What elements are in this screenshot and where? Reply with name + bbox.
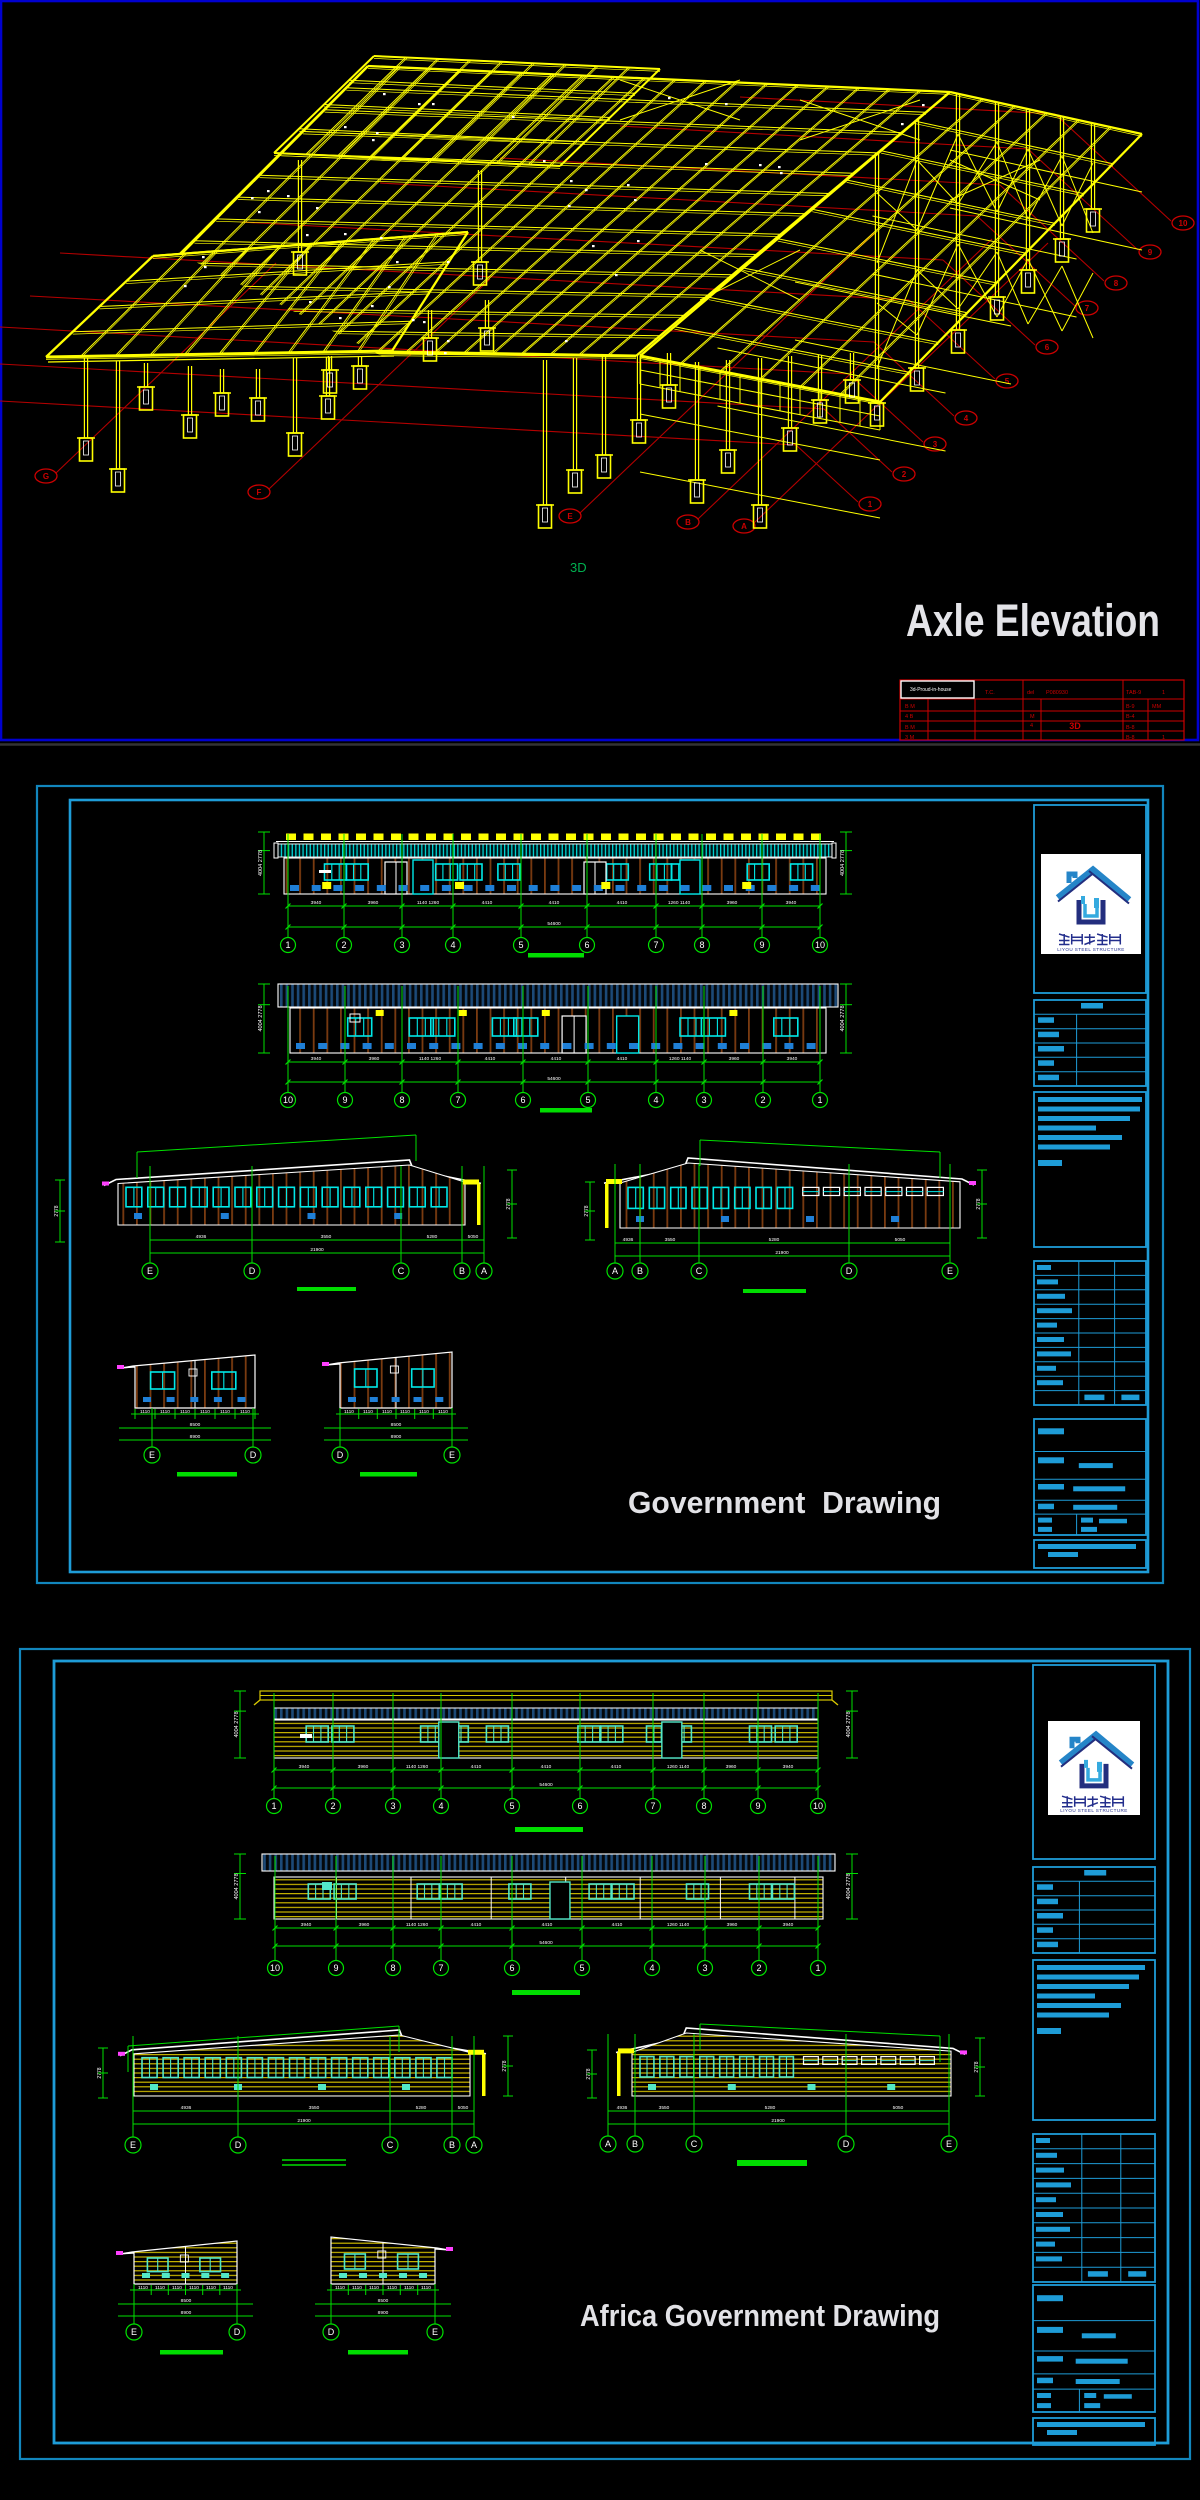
svg-text:P080930: P080930: [1046, 690, 1068, 696]
svg-text:1110: 1110: [223, 2285, 233, 2291]
svg-text:8500: 8500: [181, 2298, 192, 2304]
svg-text:B-9: B-9: [1126, 704, 1135, 710]
svg-text:6: 6: [584, 940, 589, 950]
svg-text:4004 2778: 4004 2778: [234, 1874, 240, 1900]
svg-text:4410: 4410: [541, 1764, 552, 1770]
svg-text:B: B: [449, 2140, 455, 2150]
svg-text:9: 9: [755, 1801, 760, 1811]
svg-text:1: 1: [1162, 735, 1165, 741]
svg-text:4004 2778: 4004 2778: [258, 1006, 264, 1032]
svg-text:B: B: [637, 1266, 643, 1276]
svg-text:1110: 1110: [382, 1409, 392, 1415]
svg-text:1: 1: [817, 1095, 822, 1105]
svg-text:21900: 21900: [775, 1250, 789, 1256]
svg-text:E: E: [131, 2327, 137, 2337]
svg-text:A: A: [741, 522, 747, 531]
svg-text:4410: 4410: [482, 900, 493, 906]
svg-text:1110: 1110: [140, 1409, 150, 1415]
svg-text:8: 8: [699, 940, 704, 950]
svg-text:5050: 5050: [893, 2105, 904, 2111]
svg-text:3: 3: [390, 1801, 395, 1811]
svg-text:3550: 3550: [665, 1237, 676, 1243]
svg-text:3550: 3550: [309, 2105, 320, 2111]
svg-text:10: 10: [270, 1963, 280, 1973]
svg-text:C: C: [691, 2139, 698, 2149]
svg-text:B M: B M: [905, 725, 915, 731]
svg-text:F: F: [257, 488, 262, 497]
svg-text:Africa Government Drawing: Africa Government Drawing: [580, 2298, 940, 2333]
svg-text:B-8: B-8: [1126, 735, 1135, 741]
svg-text:4004 2778: 4004 2778: [846, 1874, 852, 1900]
svg-text:3940: 3940: [299, 1764, 310, 1770]
svg-text:E: E: [149, 1450, 155, 1460]
svg-text:3d-Proud-in-house: 3d-Proud-in-house: [910, 687, 952, 693]
svg-text:7: 7: [455, 1095, 460, 1105]
svg-text:E: E: [130, 2140, 136, 2150]
svg-text:5: 5: [1005, 377, 1010, 386]
svg-text:9: 9: [342, 1095, 347, 1105]
svg-text:2: 2: [330, 1801, 335, 1811]
svg-text:5280: 5280: [769, 1237, 780, 1243]
svg-text:5280: 5280: [416, 2105, 427, 2111]
svg-text:1140 1260: 1140 1260: [419, 1056, 442, 1062]
svg-text:8900: 8900: [181, 2310, 192, 2316]
svg-text:4004 2778: 4004 2778: [258, 850, 264, 876]
svg-text:3940: 3940: [786, 900, 797, 906]
svg-text:E: E: [946, 2139, 952, 2149]
svg-text:3960: 3960: [368, 900, 379, 906]
svg-text:1110: 1110: [363, 1409, 373, 1415]
svg-text:1110: 1110: [172, 2285, 182, 2291]
svg-text:4410: 4410: [485, 1056, 496, 1062]
svg-text:1110: 1110: [220, 1409, 230, 1415]
svg-text:2: 2: [756, 1963, 761, 1973]
svg-text:E: E: [449, 1450, 455, 1460]
svg-text:D: D: [249, 1266, 256, 1276]
svg-text:D: D: [843, 2139, 850, 2149]
svg-text:10: 10: [283, 1095, 293, 1105]
svg-text:3940: 3940: [783, 1922, 794, 1928]
svg-text:6: 6: [509, 1963, 514, 1973]
svg-text:8500: 8500: [391, 1422, 402, 1428]
svg-text:3D: 3D: [1069, 721, 1081, 731]
svg-text:D: D: [234, 2327, 241, 2337]
svg-text:54600: 54600: [547, 921, 561, 927]
svg-text:1110: 1110: [240, 1409, 250, 1415]
svg-text:10: 10: [815, 940, 825, 950]
svg-text:5050: 5050: [468, 1234, 479, 1240]
svg-text:5: 5: [585, 1095, 590, 1105]
svg-text:E: E: [432, 2327, 438, 2337]
svg-text:1: 1: [815, 1963, 820, 1973]
svg-text:B-4: B-4: [1126, 714, 1135, 720]
svg-text:5: 5: [518, 940, 523, 950]
svg-text:4410: 4410: [617, 900, 628, 906]
svg-text:1110: 1110: [206, 2285, 216, 2291]
svg-text:3940: 3940: [783, 1764, 794, 1770]
svg-text:4004 2778: 4004 2778: [840, 1006, 846, 1032]
svg-text:2778: 2778: [502, 2060, 508, 2071]
svg-text:D: D: [328, 2327, 335, 2337]
svg-text:A: A: [605, 2139, 611, 2149]
svg-text:2778: 2778: [976, 1198, 982, 1209]
svg-text:3940: 3940: [311, 1056, 322, 1062]
svg-text:B: B: [632, 2139, 638, 2149]
svg-text:9: 9: [759, 940, 764, 950]
svg-text:TAB-9: TAB-9: [1126, 690, 1141, 696]
svg-text:21900: 21900: [297, 2118, 311, 2124]
svg-text:4936: 4936: [181, 2105, 192, 2111]
svg-text:6: 6: [520, 1095, 525, 1105]
svg-text:21900: 21900: [310, 1247, 324, 1253]
svg-text:G: G: [43, 472, 49, 481]
svg-text:Axle Elevation: Axle Elevation: [906, 595, 1160, 646]
svg-text:A: A: [471, 2140, 477, 2150]
svg-text:3960: 3960: [358, 1764, 369, 1770]
svg-text:1110: 1110: [155, 2285, 165, 2291]
svg-text:5280: 5280: [427, 1234, 438, 1240]
svg-text:3D: 3D: [570, 560, 587, 575]
svg-text:2778: 2778: [97, 2067, 103, 2078]
svg-text:D: D: [337, 1450, 344, 1460]
svg-text:1110: 1110: [335, 2285, 345, 2291]
svg-text:1110: 1110: [180, 1409, 190, 1415]
svg-text:3960: 3960: [727, 1922, 738, 1928]
svg-text:1110: 1110: [421, 2285, 431, 2291]
svg-text:1110: 1110: [438, 1409, 448, 1415]
svg-text:B M: B M: [905, 704, 915, 710]
svg-text:2778: 2778: [974, 2061, 980, 2072]
svg-text:4936: 4936: [196, 1234, 207, 1240]
svg-text:E: E: [147, 1266, 153, 1276]
svg-text:LIYOU STEEL STRUCTURE: LIYOU STEEL STRUCTURE: [1060, 1808, 1127, 1813]
svg-text:7: 7: [1085, 304, 1090, 313]
svg-text:D: D: [250, 1450, 257, 1460]
svg-text:1110: 1110: [387, 2285, 397, 2291]
svg-text:8: 8: [701, 1801, 706, 1811]
svg-text:3960: 3960: [727, 900, 738, 906]
svg-text:4: 4: [964, 414, 969, 423]
svg-text:2778: 2778: [506, 1198, 512, 1209]
svg-text:7: 7: [653, 940, 658, 950]
svg-text:4: 4: [438, 1801, 443, 1811]
svg-text:4 B: 4 B: [905, 714, 914, 720]
svg-text:4410: 4410: [612, 1922, 623, 1928]
svg-text:C: C: [387, 2140, 394, 2150]
svg-text:1110: 1110: [138, 2285, 148, 2291]
svg-text:D: D: [235, 2140, 242, 2150]
svg-text:3960: 3960: [369, 1056, 380, 1062]
svg-text:4: 4: [1030, 723, 1033, 729]
svg-text:1260 1140: 1260 1140: [667, 1922, 690, 1928]
svg-text:4410: 4410: [611, 1764, 622, 1770]
svg-text:4410: 4410: [551, 1056, 562, 1062]
svg-text:1110: 1110: [352, 2285, 362, 2291]
svg-text:3940: 3940: [311, 900, 322, 906]
svg-text:3: 3: [701, 1095, 706, 1105]
svg-text:1260 1140: 1260 1140: [668, 900, 691, 906]
svg-text:2778: 2778: [54, 1205, 60, 1216]
svg-text:5280: 5280: [765, 2105, 776, 2111]
svg-text:9: 9: [1148, 248, 1153, 257]
svg-text:1110: 1110: [189, 2285, 199, 2291]
svg-text:2: 2: [902, 470, 907, 479]
svg-text:54600: 54600: [539, 1782, 553, 1788]
svg-text:1260 1140: 1260 1140: [669, 1056, 692, 1062]
svg-text:C: C: [398, 1266, 405, 1276]
svg-text:3960: 3960: [359, 1922, 370, 1928]
svg-text:1: 1: [285, 940, 290, 950]
svg-text:E: E: [947, 1266, 953, 1276]
svg-text:2: 2: [760, 1095, 765, 1105]
svg-text:3: 3: [399, 940, 404, 950]
svg-text:8500: 8500: [378, 2298, 389, 2304]
svg-text:B-8: B-8: [1126, 725, 1135, 731]
svg-text:4: 4: [450, 940, 455, 950]
svg-text:4410: 4410: [542, 1922, 553, 1928]
svg-text:3960: 3960: [726, 1764, 737, 1770]
svg-text:10: 10: [813, 1801, 823, 1811]
svg-text:4936: 4936: [623, 1237, 634, 1243]
svg-text:8: 8: [399, 1095, 404, 1105]
svg-text:4410: 4410: [549, 900, 560, 906]
svg-text:4936: 4936: [617, 2105, 628, 2111]
svg-text:del: del: [1027, 690, 1034, 696]
svg-text:3960: 3960: [729, 1056, 740, 1062]
svg-text:5050: 5050: [895, 1237, 906, 1243]
svg-text:7: 7: [650, 1801, 655, 1811]
svg-text:4410: 4410: [471, 1922, 482, 1928]
svg-text:C: C: [696, 1266, 703, 1276]
svg-text:1110: 1110: [160, 1409, 170, 1415]
svg-text:1110: 1110: [419, 1409, 429, 1415]
svg-text:1: 1: [271, 1801, 276, 1811]
svg-text:54600: 54600: [539, 1940, 553, 1946]
svg-text:M: M: [1030, 714, 1035, 720]
svg-text:8500: 8500: [190, 1422, 201, 1428]
svg-text:3550: 3550: [659, 2105, 670, 2111]
svg-text:8: 8: [1114, 279, 1119, 288]
svg-text:7: 7: [438, 1963, 443, 1973]
svg-text:1110: 1110: [404, 2285, 414, 2291]
svg-text:1: 1: [1162, 690, 1165, 696]
svg-text:4410: 4410: [617, 1056, 628, 1062]
svg-text:1110: 1110: [200, 1409, 210, 1415]
svg-text:4004 2778: 4004 2778: [234, 1712, 240, 1738]
svg-text:1140 1260: 1140 1260: [417, 900, 440, 906]
svg-text:6: 6: [577, 1801, 582, 1811]
svg-text:A: A: [612, 1266, 618, 1276]
svg-text:3940: 3940: [787, 1056, 798, 1062]
svg-text:21900: 21900: [771, 2118, 785, 2124]
svg-text:3550: 3550: [321, 1234, 332, 1240]
svg-text:5: 5: [579, 1963, 584, 1973]
svg-text:E: E: [567, 512, 573, 521]
svg-text:54600: 54600: [547, 1076, 561, 1082]
svg-text:1140 1260: 1140 1260: [406, 1764, 429, 1770]
svg-text:8900: 8900: [190, 1434, 201, 1440]
svg-text:3: 3: [933, 440, 938, 449]
svg-text:4004 2778: 4004 2778: [846, 1712, 852, 1738]
svg-text:1110: 1110: [344, 1409, 354, 1415]
svg-text:4: 4: [649, 1963, 654, 1973]
svg-text:3: 3: [702, 1963, 707, 1973]
svg-text:D: D: [846, 1266, 853, 1276]
svg-text:8: 8: [390, 1963, 395, 1973]
svg-text:B: B: [685, 518, 691, 527]
svg-text:1110: 1110: [400, 1409, 410, 1415]
svg-text:10: 10: [1179, 219, 1188, 228]
svg-text:3 M: 3 M: [905, 735, 915, 741]
svg-text:MM: MM: [1152, 704, 1162, 710]
svg-text:2778: 2778: [586, 2068, 592, 2079]
svg-text:1140 1260: 1140 1260: [406, 1922, 429, 1928]
svg-text:4: 4: [653, 1095, 658, 1105]
svg-text:Government Drawing: Government Drawing: [628, 1485, 941, 1520]
svg-text:2778: 2778: [584, 1205, 590, 1216]
svg-text:2: 2: [341, 940, 346, 950]
svg-text:9: 9: [333, 1963, 338, 1973]
svg-text:4410: 4410: [471, 1764, 482, 1770]
svg-text:LIYOU STEEL STRUCTURE: LIYOU STEEL STRUCTURE: [1057, 947, 1124, 952]
svg-text:6: 6: [1045, 343, 1050, 352]
svg-text:1110: 1110: [369, 2285, 379, 2291]
svg-text:B: B: [459, 1266, 465, 1276]
svg-text:8900: 8900: [391, 1434, 402, 1440]
svg-text:1: 1: [868, 500, 873, 509]
svg-text:T.C.: T.C.: [985, 690, 995, 696]
svg-text:1260 1140: 1260 1140: [667, 1764, 690, 1770]
svg-text:5050: 5050: [458, 2105, 469, 2111]
svg-text:5: 5: [509, 1801, 514, 1811]
svg-text:A: A: [481, 1266, 487, 1276]
svg-text:3940: 3940: [301, 1922, 312, 1928]
svg-text:4004 2778: 4004 2778: [840, 850, 846, 876]
svg-text:8900: 8900: [378, 2310, 389, 2316]
